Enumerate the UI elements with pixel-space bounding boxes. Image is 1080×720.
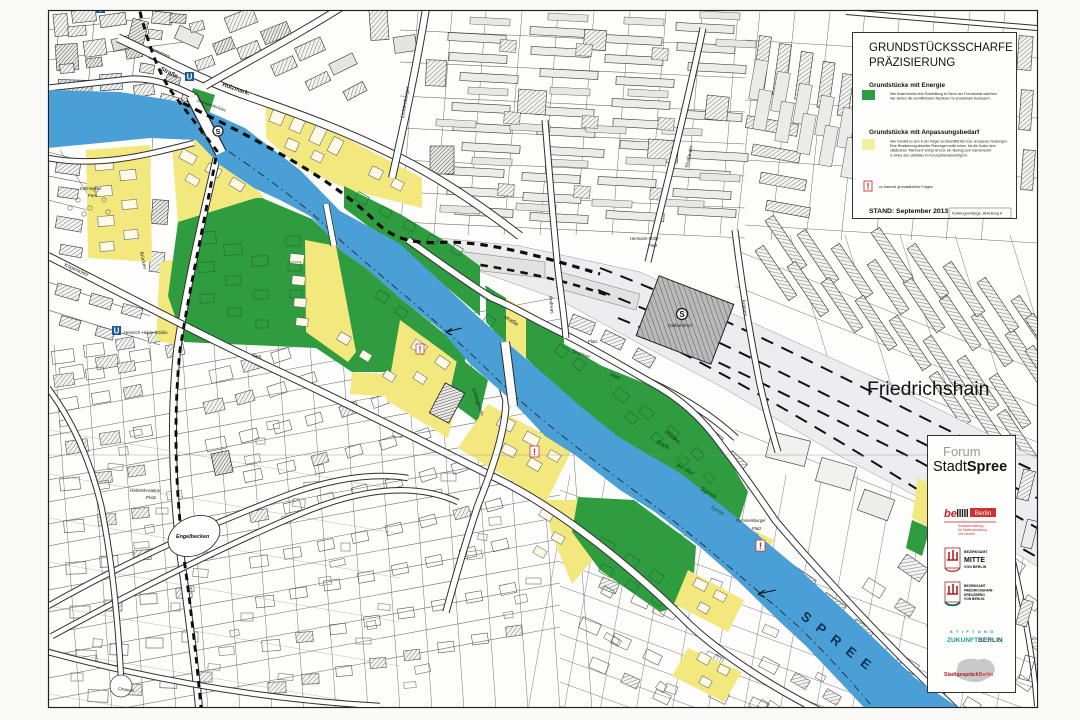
svg-text:be: be (944, 508, 957, 520)
svg-text:Kartengrundlage: Abteilung II: Kartengrundlage: Abteilung II (952, 211, 1002, 216)
svg-text:S T I F T U N G: S T I F T U N G (950, 630, 994, 634)
svg-text:Hier findet bereits eine Entwi: Hier findet bereits eine Entwicklung im … (890, 92, 997, 96)
svg-text:BEZIRKSAMT: BEZIRKSAMT (964, 550, 988, 554)
svg-text:Platz: Platz (146, 495, 157, 500)
svg-text:Hermann-Stöhr-: Hermann-Stöhr- (630, 236, 661, 241)
svg-text:Forum: Forum (943, 444, 981, 459)
svg-text:Rummelsburger: Rummelsburger (736, 518, 766, 523)
svg-text:STAND: September 2013: STAND: September 2013 (869, 208, 948, 215)
svg-text:Köllnischer: Köllnischer (80, 186, 102, 191)
svg-text:Hier handelt es sich in der Re: Hier handelt es sich in der Regel um Bra… (890, 140, 1008, 144)
svg-text:StadtSpree: StadtSpree (933, 459, 1007, 475)
svg-text:VON BERLIN: VON BERLIN (964, 597, 985, 601)
svg-text:Platz: Platz (648, 243, 657, 248)
svg-text:Engelbecken: Engelbecken (176, 534, 210, 540)
svg-text:KREUZBERG: KREUZBERG (964, 593, 985, 597)
svg-text:FRIEDRICHSHAIN-: FRIEDRICHSHAIN- (964, 588, 993, 592)
svg-text:ZUKUNFTBERLIN: ZUKUNFTBERLIN (947, 637, 1003, 644)
svg-text:PRÄZISIERUNG: PRÄZISIERUNG (869, 57, 955, 69)
svg-text:U: U (114, 327, 120, 336)
svg-text:BEZIRKSAMT: BEZIRKSAMT (964, 584, 986, 588)
svg-text:und Umwelt: und Umwelt (958, 532, 975, 536)
svg-text:hier stehen die vermittlebaren: hier stehen die vermittlebaren Nachbarn … (890, 97, 991, 101)
svg-text:!: ! (533, 447, 536, 458)
svg-text:U: U (187, 73, 193, 82)
svg-text:Platz: Platz (588, 339, 597, 344)
svg-text:!: ! (867, 182, 870, 192)
svg-text:städtischen 'Mehrwert' erfolgt: städtischen 'Mehrwert' erfolgt ist bzw. … (890, 149, 992, 153)
svg-text:Berlin: Berlin (975, 510, 992, 517)
svg-text:MITTE: MITTE (964, 557, 985, 564)
svg-text:GRUNDSTÜCKSSCHARFE: GRUNDSTÜCKSSCHARFE (869, 42, 1013, 54)
svg-text:!: ! (759, 541, 762, 552)
svg-text:Platz: Platz (752, 526, 761, 531)
svg-text:Eine Realisierung aktueller Pl: Eine Realisierung aktueller Planungen so… (890, 144, 996, 148)
svg-text:!: ! (419, 345, 422, 355)
svg-text:Heinrich-Heine: Heinrich-Heine (130, 488, 161, 493)
svg-text:S: S (679, 310, 685, 319)
svg-text:zu lösende grundsätzliche Frag: zu lösende grundsätzliche Fragen (879, 185, 933, 189)
svg-text:Ostbahnhof: Ostbahnhof (668, 323, 692, 328)
svg-text:StadtgesprächBerlin: StadtgesprächBerlin (944, 672, 993, 678)
svg-text:in Sinne des Leitbildes im Kon: in Sinne des Leitbildes im Konzeptberück… (890, 153, 968, 157)
svg-text:VON BERLIN: VON BERLIN (964, 565, 987, 569)
svg-text:Grundstücke mit Anpassungsbeda: Grundstücke mit Anpassungsbedarf (869, 129, 980, 136)
svg-text:Friedrichshain: Friedrichshain (867, 378, 989, 400)
svg-text:S: S (215, 127, 220, 136)
svg-text:Grundstücke mit Energie: Grundstücke mit Energie (869, 82, 945, 89)
svg-text:Park: Park (88, 193, 98, 198)
svg-text:Heinrich-Heine-Straße: Heinrich-Heine-Straße (124, 330, 168, 335)
